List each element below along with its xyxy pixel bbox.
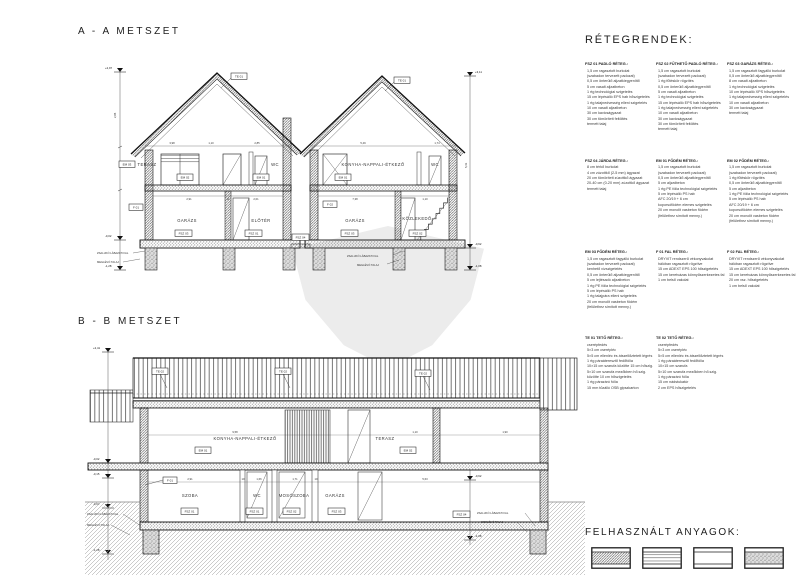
aa-house-1: TERASZ WC GARÁZS ELŐTÉR <box>131 73 301 270</box>
svg-text:FSZ 01: FSZ 01 <box>250 510 260 514</box>
materials-panel: FELHASZNÁLT ANYAGOK: TÉGLA FAL <box>585 527 795 553</box>
legend-line: 1 cm belső vakolat <box>656 278 724 283</box>
svg-text:WC: WC <box>253 493 261 498</box>
legend-block-lines: 8 cm térkő burkolat4 cm zúzottkő (2-5 mm… <box>585 165 653 192</box>
bb-floor-slab <box>88 463 548 470</box>
svg-text:2,91: 2,91 <box>186 197 192 201</box>
svg-text:2,85: 2,85 <box>113 112 117 118</box>
svg-text:FSZ 03: FSZ 03 <box>179 232 189 236</box>
legend-block-title: EM 03 FÖDÉM RÉTEG.: <box>585 250 653 256</box>
footing <box>143 530 159 554</box>
svg-text:1,71: 1,71 <box>292 477 298 481</box>
svg-text:-0,15: -0,15 <box>93 472 100 476</box>
legend-block-title: TE 01 TETŐ RÉTEG.: <box>585 336 653 342</box>
legend-block: FSZ 01 PADLÓ RÉTEG.: 1,5 cm ragasztott b… <box>585 62 653 127</box>
svg-text:-0,62: -0,62 <box>475 474 482 478</box>
legend-line: 1 cm belső vakolat <box>727 284 795 289</box>
legend-block: FSZ 02 FŰTHETŐ PADLÓ RÉTEG.: 1,5 cm raga… <box>656 62 724 133</box>
legend-block-title: F 01 FAL RÉTEG.: <box>656 250 724 256</box>
svg-text:-0,02: -0,02 <box>105 234 112 238</box>
legend-line: (felülethez simított menny.) <box>727 219 795 224</box>
svg-text:MEGLÉVŐ TALAJ: MEGLÉVŐ TALAJ <box>97 259 120 264</box>
section-title-bb: B - B METSZET <box>78 316 182 327</box>
legend-block: F 01 FAL RÉTEG.: DRYVIT rendszerű vékony… <box>656 250 724 283</box>
svg-text:9,58: 9,58 <box>232 430 238 434</box>
ground-slab <box>140 240 300 248</box>
partition-wall <box>417 152 421 185</box>
roof-extension <box>540 358 577 410</box>
legend-line: (felülethez simított menny.) <box>585 305 653 310</box>
svg-text:+2,97: +2,97 <box>105 66 113 70</box>
svg-text:TE 02: TE 02 <box>156 370 164 374</box>
svg-text:F 01: F 01 <box>167 479 173 483</box>
column <box>433 408 440 463</box>
legend-block-lines: cserépfedés5×3 cm cserépléc5×5 cm ellenl… <box>585 343 653 391</box>
legend-line: 1 rtg talajnedvesség elleni szigetelés <box>727 95 795 100</box>
svg-text:EM 01: EM 01 <box>199 449 208 453</box>
svg-text:EM 03: EM 03 <box>123 163 132 167</box>
svg-text:FSZ 03: FSZ 03 <box>332 510 342 514</box>
floor-slab <box>145 185 291 191</box>
legend-line: termett talaj <box>585 187 653 192</box>
party-wall <box>283 118 291 240</box>
legend-line: 2 cm EPS hőszigetelés <box>656 386 724 391</box>
svg-text:EM 02: EM 02 <box>181 176 190 180</box>
svg-text:MEGLÉVŐ TALAJ: MEGLÉVŐ TALAJ <box>481 519 504 524</box>
material-swatch-icon <box>642 547 682 569</box>
svg-text:ZSALUKŐ LÁBAZATI FAL: ZSALUKŐ LÁBAZATI FAL <box>477 510 509 515</box>
svg-text:TE 02: TE 02 <box>419 372 427 376</box>
roof-band <box>300 76 465 157</box>
svg-text:KONYHA-NAPPALI-ÉTKEZŐ: KONYHA-NAPPALI-ÉTKEZŐ <box>213 436 276 441</box>
exterior-wall <box>449 150 457 240</box>
section-aa-drawing: +2,97 -0,02 -1,28 2,85 +3,11 -0,62 -1,08… <box>95 58 511 310</box>
legend-block-lines: 1,5 cm ragasztott burkolat(szabadon terv… <box>656 165 724 219</box>
material-item: HŐSZIGETELÉS <box>693 547 733 553</box>
partition-wall <box>272 470 277 522</box>
svg-text:WC: WC <box>431 162 439 167</box>
svg-text:1,10: 1,10 <box>208 141 214 145</box>
drawing-sheet: A - A METSZET +2,97 -0,02 -1,28 2,85 +3,… <box>0 0 800 586</box>
legend-block-title: FSZ 01 PADLÓ RÉTEG.: <box>585 62 653 68</box>
material-item: FA SZERKEZET <box>642 547 682 553</box>
svg-text:EM 01: EM 01 <box>339 176 348 180</box>
legend-line: termett talaj <box>585 122 653 127</box>
exterior-wall <box>140 470 148 522</box>
legend-block-title: FSZ 04 JÁRDA RÉTEG.: <box>585 159 653 165</box>
svg-text:FSZ 03: FSZ 03 <box>345 232 355 236</box>
svg-text:TE 01: TE 01 <box>235 75 243 79</box>
roof-band <box>131 73 301 157</box>
footing <box>145 248 157 270</box>
exterior-wall <box>540 408 548 463</box>
footing <box>313 248 325 270</box>
aa-right-dimension: +3,11 -0,62 -1,08 5,41 <box>464 70 482 270</box>
legend-line: termett talaj <box>656 127 724 132</box>
svg-text:FSZ 02: FSZ 02 <box>413 232 423 236</box>
legend-line: 10×15 cm szarufa közötte 15 cm hőszig. <box>585 364 653 369</box>
legend-block: F 02 FAL RÉTEG.: DRYVIT rendszerű vékony… <box>727 250 795 289</box>
legend-block: EM 02 FÖDÉM RÉTEG.: 1,5 cm ragasztott bu… <box>727 159 795 224</box>
svg-text:F 02: F 02 <box>327 203 333 207</box>
svg-text:MEGLÉVŐ TALAJ: MEGLÉVŐ TALAJ <box>357 262 380 267</box>
legend-block-lines: 1,5 cm ragasztott burkolat(szabadon terv… <box>585 69 653 128</box>
material-swatch-icon <box>693 547 733 569</box>
svg-text:ZSALUKŐ LÁBAZATI FAL: ZSALUKŐ LÁBAZATI FAL <box>347 253 379 258</box>
svg-text:ELŐTÉR: ELŐTÉR <box>251 218 270 223</box>
svg-text:MOSÓSZOBA: MOSÓSZOBA <box>279 493 310 498</box>
svg-text:TE 01: TE 01 <box>398 79 406 83</box>
svg-text:5,49: 5,49 <box>360 141 366 145</box>
materials-title: FELHASZNÁLT ANYAGOK: <box>585 527 795 538</box>
legend-block-lines: 1,5 cm ragasztott burkolat(szabadon terv… <box>656 69 724 133</box>
svg-text:-0,02: -0,02 <box>93 457 100 461</box>
svg-text:+3,11: +3,11 <box>475 70 482 74</box>
footing <box>283 248 295 270</box>
legend-block: EM 01 FÖDÉM RÉTEG.: 1,5 cm ragasztott bu… <box>656 159 724 219</box>
svg-text:EM 01: EM 01 <box>257 176 266 180</box>
svg-text:FSZ 01: FSZ 01 <box>249 232 259 236</box>
svg-text:GARÁZS: GARÁZS <box>345 218 365 223</box>
partition-wall <box>249 152 253 185</box>
svg-text:7,38: 7,38 <box>352 197 358 201</box>
legend-block-lines: 1,5 cm ragasztott fagyálló burkolat0,5 c… <box>727 69 795 117</box>
material-item: TÉGLA FAL <box>591 547 631 553</box>
legend-block: FSZ 04 JÁRDA RÉTEG.: 8 cm térkő burkolat… <box>585 159 653 192</box>
svg-text:2,91: 2,91 <box>187 477 193 481</box>
svg-text:ZSALUKŐ LÁBAZATI FAL: ZSALUKŐ LÁBAZATI FAL <box>97 250 129 255</box>
svg-text:5,63: 5,63 <box>422 477 428 481</box>
legend-block-lines: DRYVIT rendszerű vékonyvakolathálóban ra… <box>656 257 724 284</box>
exterior-wall <box>540 470 548 522</box>
svg-text:-0,62: -0,62 <box>475 242 482 246</box>
svg-text:5,41: 5,41 <box>464 162 468 168</box>
footing <box>445 248 457 270</box>
legend-block-lines: DRYVIT rendszerű vékonyvakolathálóban ra… <box>727 257 795 289</box>
legend-panel: RÉTEGRENDEK: FSZ 01 PADLÓ RÉTEG.: 1,5 cm… <box>585 34 795 391</box>
legend-block-title: EM 02 FÖDÉM RÉTEG.: <box>727 159 795 165</box>
bb-terrace-railing <box>90 390 133 422</box>
legend-block-title: TE 02 TETŐ RÉTEG.: <box>656 336 724 342</box>
svg-text:FSZ 02: FSZ 02 <box>287 510 297 514</box>
legend-block-title: FSZ 03 GARÁZS RÉTEG.: <box>727 62 795 68</box>
legend-block-title: F 02 FAL RÉTEG.: <box>727 250 795 256</box>
svg-text:WC: WC <box>271 162 279 167</box>
svg-text:F 01: F 01 <box>133 206 139 210</box>
svg-text:KONYHA-NAPPALI-ÉTKEZŐ: KONYHA-NAPPALI-ÉTKEZŐ <box>341 162 404 167</box>
legend-line: termett talaj <box>727 111 795 116</box>
footing <box>223 248 235 270</box>
svg-text:1,10: 1,10 <box>412 430 418 434</box>
svg-text:1,74: 1,74 <box>434 141 440 145</box>
svg-text:SZOBA: SZOBA <box>182 493 198 498</box>
legend-line: 15 cm lépésálló EPS hab hőszigetelés <box>585 95 653 100</box>
legend-block: TE 02 TETŐ RÉTEG.: cserépfedés5×3 cm cse… <box>656 336 724 391</box>
legend-block-lines: cserépfedés5×3 cm cserépléc5×5 cm ellenl… <box>656 343 724 391</box>
bb-roof <box>133 358 577 410</box>
exterior-wall <box>310 150 318 240</box>
svg-text:TERASZ: TERASZ <box>376 436 395 441</box>
material-swatch-icon <box>744 547 784 569</box>
svg-text:FSZ 04: FSZ 04 <box>296 236 306 240</box>
legend-block: TE 01 TETŐ RÉTEG.: cserépfedés5×3 cm cse… <box>585 336 653 391</box>
legend-block-lines: 1,5 cm ragasztott burkolat(szabadon terv… <box>727 165 795 224</box>
svg-text:FSZ 01: FSZ 01 <box>185 510 195 514</box>
svg-text:11: 11 <box>227 197 230 201</box>
svg-text:1,10: 1,10 <box>422 197 428 201</box>
svg-text:TE 02: TE 02 <box>279 370 287 374</box>
ground-slab <box>305 240 465 248</box>
slat-screen <box>285 410 330 463</box>
svg-text:3,98: 3,98 <box>169 141 175 145</box>
svg-text:1,66: 1,66 <box>256 477 262 481</box>
exterior-wall <box>140 408 148 463</box>
svg-text:KÖZLEKEDŐ: KÖZLEKEDŐ <box>402 216 432 221</box>
svg-text:TERASZ: TERASZ <box>138 162 157 167</box>
svg-text:GARÁZS: GARÁZS <box>325 493 345 498</box>
partition-wall <box>395 191 401 240</box>
floor-slab <box>310 185 457 191</box>
section-bb-drawing: +2,41 -0,02 -0,15 -0,62 -1,28 3,01 -0,62… <box>85 330 585 582</box>
aa-house-2: KONYHA-NAPPALI-ÉTKEZŐ WC GARÁZS KÖZLEKED… <box>300 76 465 270</box>
aa-foundation-annotations: ZSALUKŐ LÁBAZATI FAL MEGLÉVŐ TALAJ ZSALU… <box>97 250 403 267</box>
aa-left-dimension: +2,97 -0,02 -1,28 2,85 <box>105 66 126 270</box>
svg-text:-1,08: -1,08 <box>475 264 482 268</box>
legend-block-title: FSZ 02 FŰTHETŐ PADLÓ RÉTEG.: <box>656 62 724 68</box>
svg-text:10: 10 <box>315 477 318 481</box>
bb-upper-floor: KONYHA-NAPPALI-ÉTKEZŐ TERASZ 9,58 1,10 1… <box>140 408 548 463</box>
svg-text:-1,28: -1,28 <box>105 264 112 268</box>
material-item: VASBETON <box>744 547 784 553</box>
legend-block-title: EM 01 FÖDÉM RÉTEG.: <box>656 159 724 165</box>
legend-line: 15 mm tűzálló OSB gipszkarton <box>585 386 653 391</box>
svg-text:10: 10 <box>242 477 245 481</box>
legend-line: 20-40 cm (0-20 mm) zúzottkő ágyazat <box>585 181 653 186</box>
svg-text:2,01: 2,01 <box>253 197 259 201</box>
legend-block: EM 03 FÖDÉM RÉTEG.: 1,5 cm ragasztott fa… <box>585 250 653 310</box>
svg-text:FSZ 04: FSZ 04 <box>457 513 467 517</box>
legend-block-lines: 1,5 cm ragasztott fagyálló burkolat(szab… <box>585 257 653 311</box>
roof-slab <box>133 401 540 408</box>
legend-title: RÉTEGRENDEK: <box>585 34 795 46</box>
svg-text:EM 02: EM 02 <box>404 449 413 453</box>
material-swatch-icon <box>591 547 631 569</box>
footing <box>530 530 546 554</box>
legend-blocks: FSZ 01 PADLÓ RÉTEG.: 1,5 cm ragasztott b… <box>585 62 795 391</box>
footing <box>393 248 405 270</box>
svg-text:2,85: 2,85 <box>254 141 260 145</box>
section-title-aa: A - A METSZET <box>78 26 181 37</box>
svg-text:+2,41: +2,41 <box>93 346 101 350</box>
materials-row: TÉGLA FAL FA SZERKEZET <box>591 547 795 553</box>
legend-block: FSZ 03 GARÁZS RÉTEG.: 1,5 cm ragasztott … <box>727 62 795 117</box>
legend-line: (felülethez simított menny.) <box>656 214 724 219</box>
svg-text:GARÁZS: GARÁZS <box>177 218 197 223</box>
svg-text:1,90: 1,90 <box>502 430 508 434</box>
